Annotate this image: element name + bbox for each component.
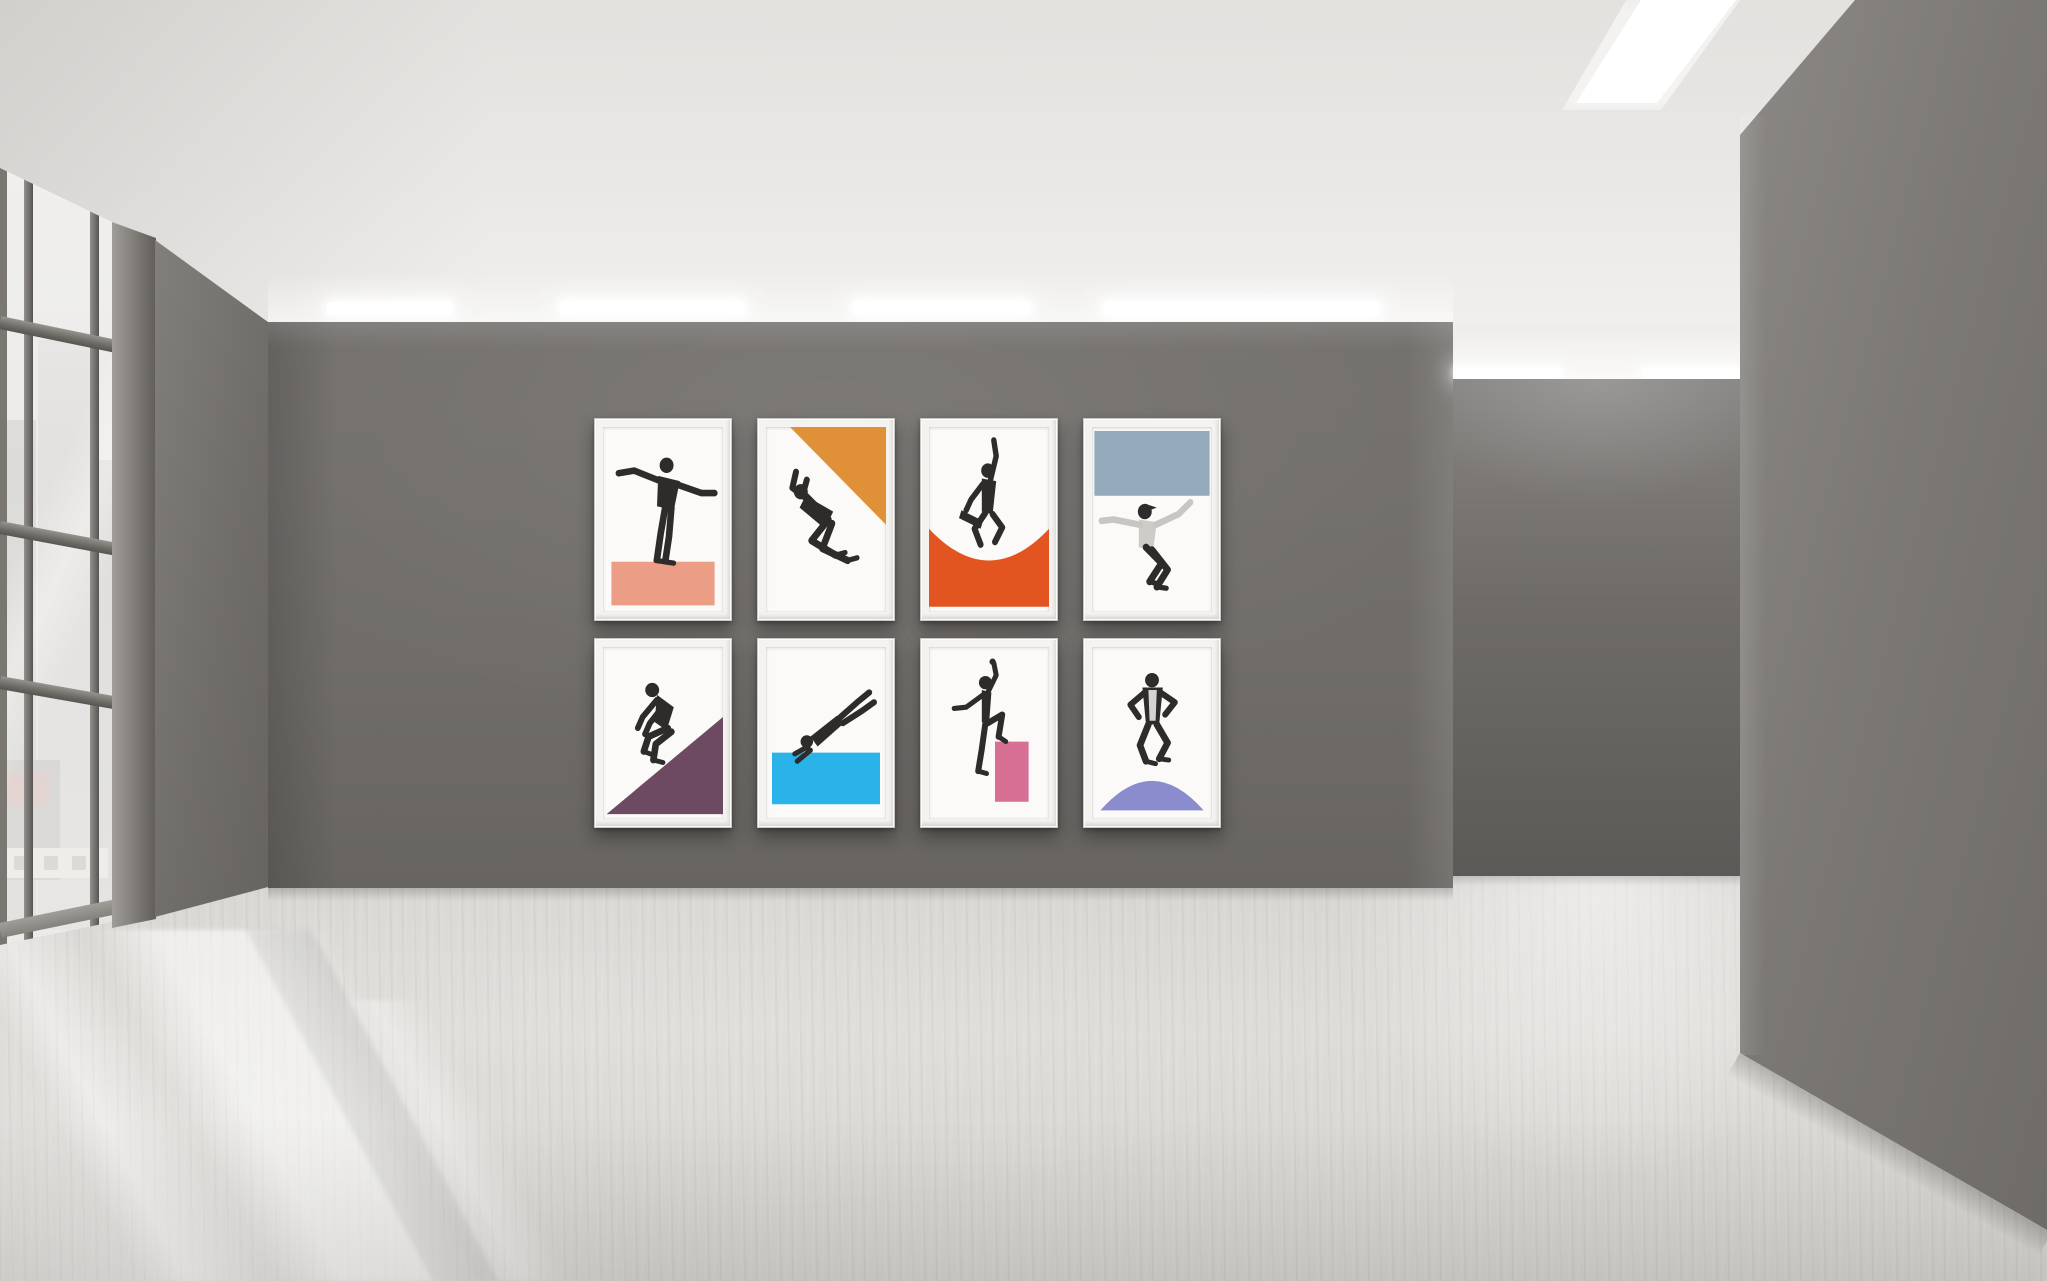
poster-8 [1083,638,1221,828]
corridor-ceiling [1453,325,1740,380]
poster-1 [594,418,732,621]
figure-tuck-jumping-man [638,683,674,763]
edge-light [1407,322,1453,888]
figure-jumping-man-cap [1102,502,1191,588]
poster-art [1092,427,1212,612]
ceiling-light [1103,302,1380,316]
corridor-back-wall [1453,379,1740,876]
feature-wall [268,322,1453,888]
right-wall-edge-light [1740,115,1766,1055]
poster-6 [757,638,895,828]
corner-shading [268,322,338,888]
accent-shape [772,753,880,805]
poster-art [603,427,723,612]
poster-art [766,647,886,819]
window-frame-column [112,222,156,928]
accent-shape [1094,431,1209,496]
accent-shape [929,529,1049,607]
corridor-light [1642,368,1739,378]
edge-light [268,322,1453,348]
poster-5 [594,638,732,828]
figure-jumping-man [1130,673,1174,764]
accent-shape [995,742,1029,802]
poster-art [766,427,886,612]
side-wall [155,240,269,918]
poster-4 [1083,418,1221,621]
ceiling-light [327,302,452,315]
right-wall [1740,0,2047,1230]
ceiling-light [560,301,745,315]
gallery-room [0,0,2047,1281]
window-mullion [24,160,33,950]
poster-7 [920,638,1058,828]
poster-art [603,647,723,819]
figure-diver [795,692,874,761]
accent-shape [611,562,714,606]
poster-art [929,647,1049,819]
ceiling-light [853,301,1030,315]
wall-contact-shadow [268,887,1453,901]
poster-art [929,427,1049,612]
poster-2 [757,418,895,621]
accent-shape [1100,781,1203,810]
window-mullion [0,160,7,950]
poster-3 [920,418,1058,621]
window-mullion [90,160,99,950]
figure-balancing-man [619,458,715,563]
figure-skateboarder [959,440,1002,544]
floor-shading [0,1120,2047,1281]
wall-contact-shadow [1453,876,1740,886]
poster-art [1092,647,1212,819]
corridor-light [1456,368,1562,378]
ceiling-light-wash [268,274,1453,324]
